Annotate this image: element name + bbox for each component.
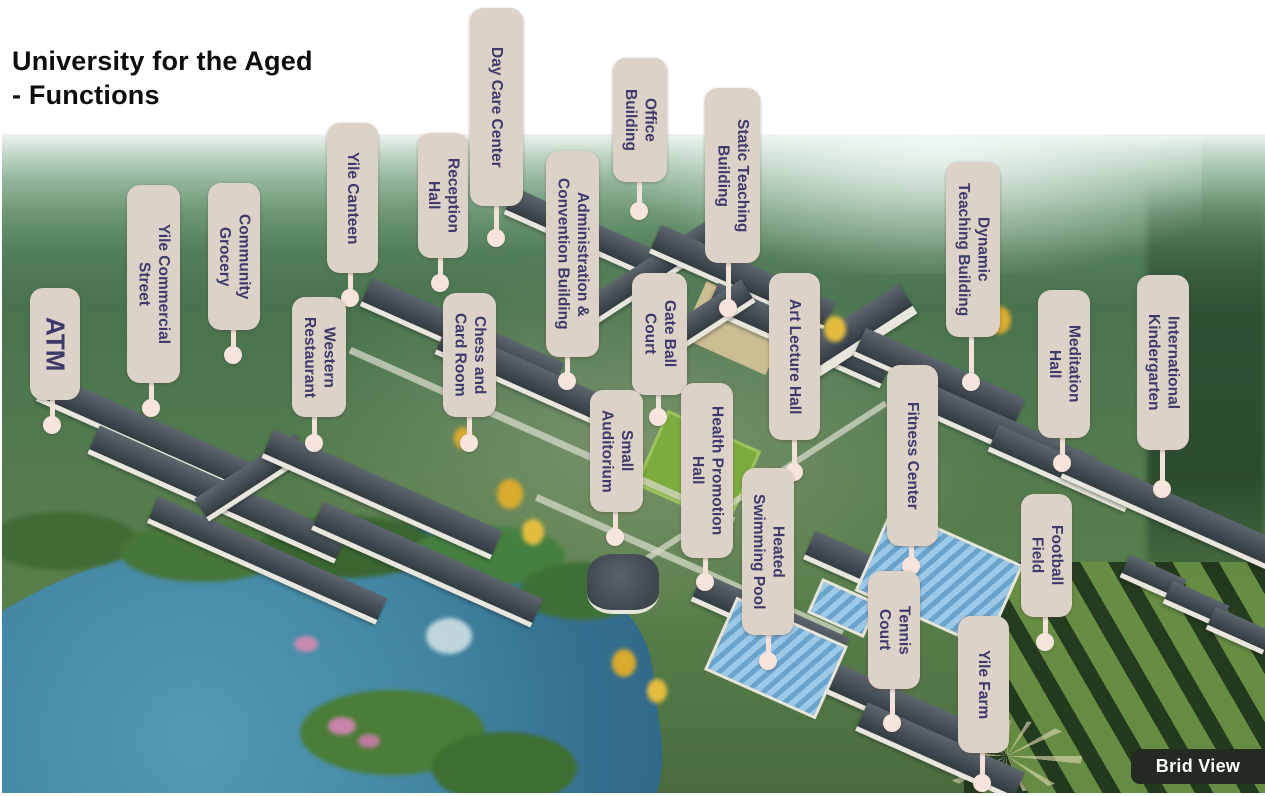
view-badge-label: Brid View — [1156, 756, 1240, 777]
decor-pink-flowers — [358, 734, 380, 748]
decor-pink-flowers — [1022, 499, 1062, 519]
campus-aerial-photo: Brid View — [2, 134, 1265, 793]
view-badge: Brid View — [1131, 749, 1265, 784]
decor-yellow-tree — [647, 679, 667, 703]
decor-yellow-tree — [497, 479, 523, 509]
decor-pink-flowers — [328, 717, 356, 735]
decor-yellow-tree — [454, 427, 472, 449]
decor-yellow-tree — [824, 316, 846, 342]
decor-waterfall — [426, 618, 472, 654]
decor-yellow-tree — [987, 306, 1011, 334]
page-title-line1: University for the Aged — [12, 46, 313, 76]
small-auditorium-building — [587, 554, 659, 614]
decor-pink-flowers — [294, 636, 318, 652]
page-title-line2: - Functions — [12, 80, 160, 110]
page-title: University for the Aged- Functions — [12, 44, 313, 112]
decor-yellow-tree — [522, 519, 544, 545]
decor-yellow-tree — [792, 299, 818, 329]
slide: University for the Aged- Functions — [0, 0, 1265, 796]
decor-yellow-tree — [612, 649, 636, 677]
